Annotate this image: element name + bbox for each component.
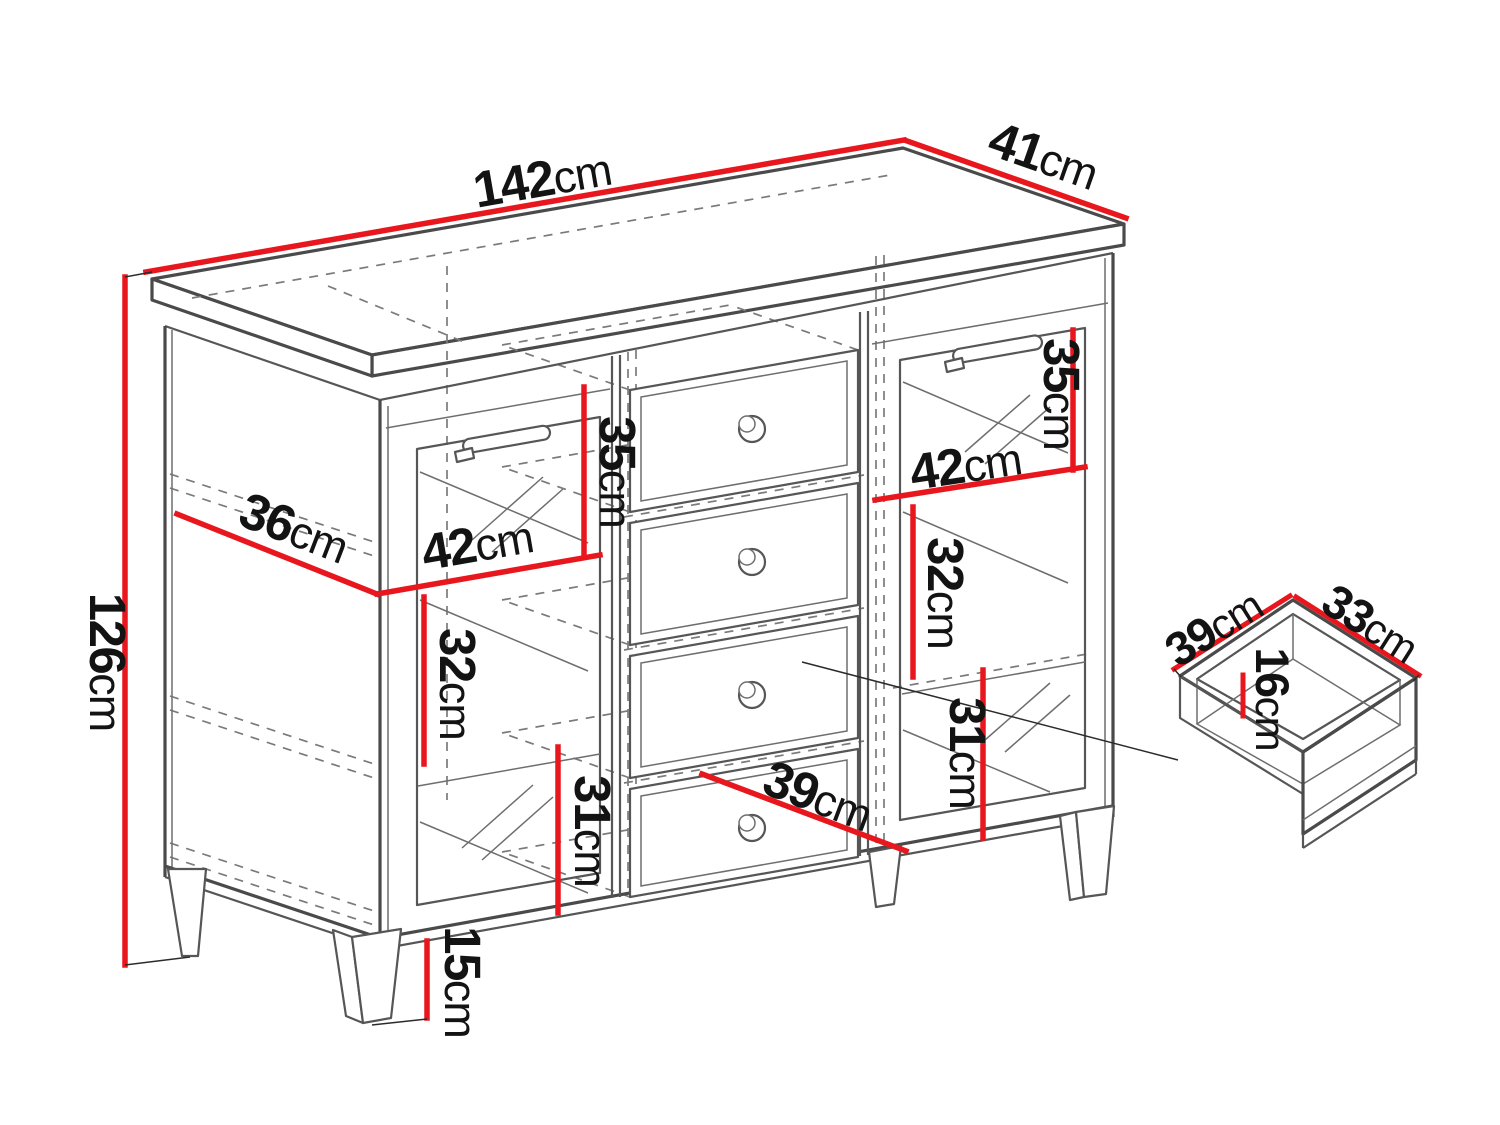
front-right-leg xyxy=(1076,806,1114,897)
back-right-leg xyxy=(869,846,901,907)
door-handle xyxy=(455,425,551,462)
back-left-leg xyxy=(168,869,206,956)
dim-label-right-32: 32cm xyxy=(917,537,974,649)
diagram-svg: 142cm 41cm 126cm 36cm 35cm 42cm 32cm 31c… xyxy=(0,0,1500,1125)
dim-label-right-31: 31cm xyxy=(939,697,996,809)
dim-label-left-31: 31cm xyxy=(564,775,621,887)
dim-label-left-32: 32cm xyxy=(429,628,486,740)
drawer-knob-icon xyxy=(739,682,765,708)
dim-label-detail-16: 16cm xyxy=(1246,647,1299,750)
drawer-1 xyxy=(630,350,858,512)
dim-label-leg-15: 15cm xyxy=(434,926,491,1038)
dim-label-left-35: 35cm xyxy=(589,416,646,528)
dim-label-right-35: 35cm xyxy=(1033,338,1090,450)
cabinet-top-panel xyxy=(152,148,1124,376)
dim-label-right-42: 42cm xyxy=(906,428,1025,501)
door-handle xyxy=(945,334,1043,372)
drawer-knob-icon xyxy=(739,549,765,575)
dim-label-height-126: 126cm xyxy=(79,593,136,732)
drawer-knob-icon xyxy=(739,815,765,841)
drawer-2 xyxy=(630,483,858,645)
drawer-knob-icon xyxy=(739,416,765,442)
furniture-dimension-diagram: 142cm 41cm 126cm 36cm 35cm 42cm 32cm 31c… xyxy=(0,0,1500,1125)
drawer-3 xyxy=(630,616,858,778)
